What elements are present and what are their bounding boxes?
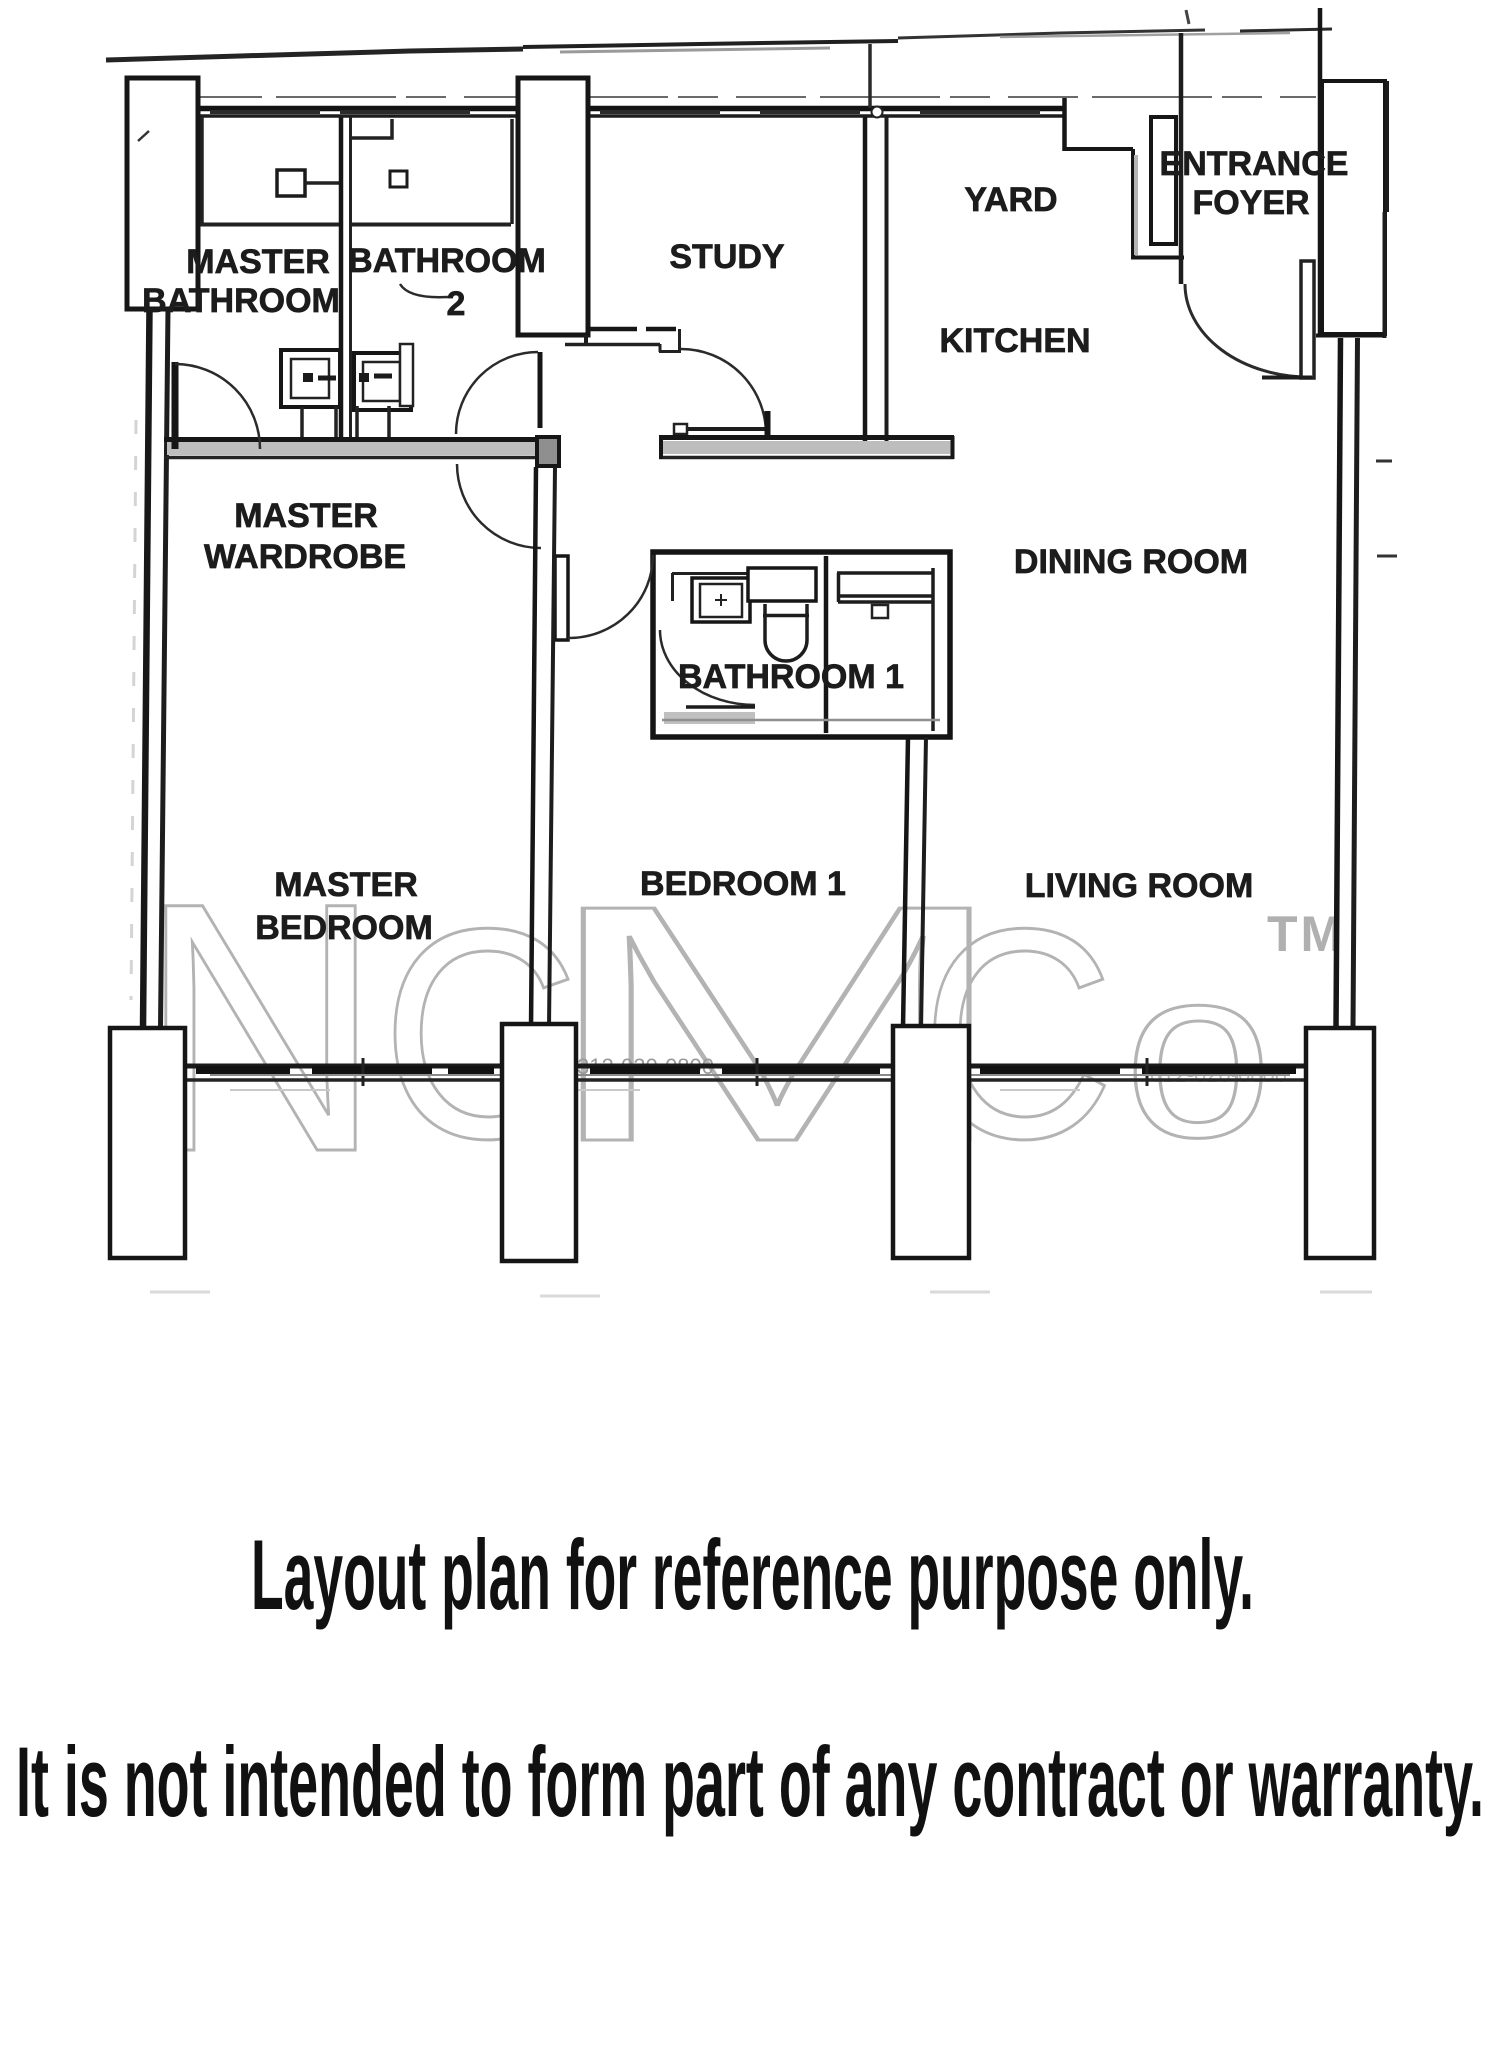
- svg-text:KITCHEN: KITCHEN: [939, 322, 1090, 360]
- svg-text:ENTRANCE: ENTRANCE: [1160, 145, 1349, 183]
- svg-text:BATHROOM: BATHROOM: [348, 242, 546, 280]
- svg-text:YARD: YARD: [964, 181, 1057, 219]
- svg-text:BATHROOM: BATHROOM: [142, 282, 340, 320]
- svg-text:LIVING ROOM: LIVING ROOM: [1025, 867, 1254, 905]
- svg-text:BEDROOM: BEDROOM: [255, 909, 433, 947]
- svg-text:BATHROOM 1: BATHROOM 1: [678, 658, 904, 696]
- svg-text:2: 2: [447, 285, 466, 323]
- svg-text:Layout plan for reference purp: Layout plan for reference purpose only.: [251, 1519, 1254, 1630]
- svg-text:MASTER: MASTER: [274, 866, 418, 904]
- svg-text:MASTER: MASTER: [234, 497, 378, 535]
- svg-text:DINING ROOM: DINING ROOM: [1014, 543, 1248, 581]
- svg-text:TM: TM: [1267, 906, 1345, 962]
- svg-text:MASTER: MASTER: [186, 243, 330, 281]
- svg-text:BEDROOM 1: BEDROOM 1: [640, 865, 846, 903]
- svg-text:It is not intended to form par: It is not intended to form part of any c…: [16, 1726, 1484, 1837]
- svg-text:o: o: [1124, 917, 1273, 1188]
- svg-text:STUDY: STUDY: [669, 238, 785, 276]
- svg-text:WARDROBE: WARDROBE: [204, 538, 406, 576]
- svg-text:FOYER: FOYER: [1192, 184, 1309, 222]
